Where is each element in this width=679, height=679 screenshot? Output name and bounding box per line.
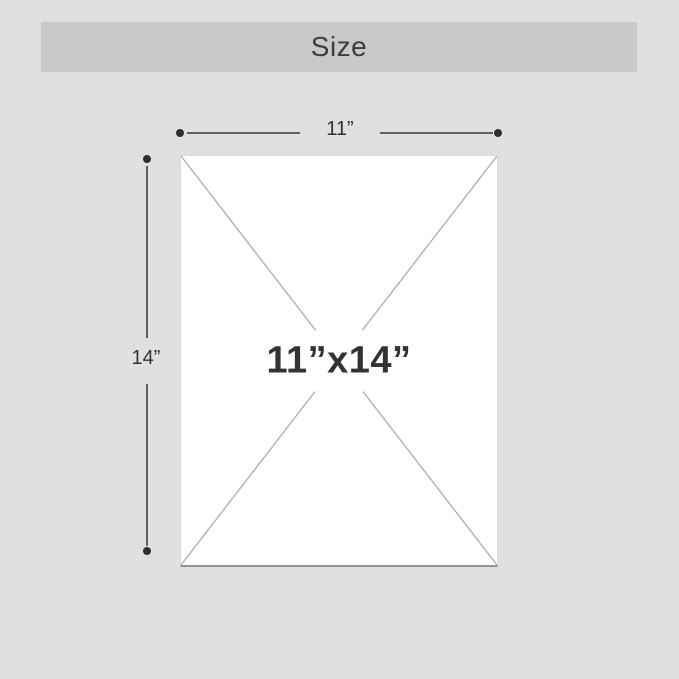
size-panel: 11”x14”: [180, 155, 498, 567]
height-dimension-bottom-dot-icon: [143, 547, 151, 555]
width-dimension-label: 11”: [316, 118, 364, 141]
size-diagram: Size 11” 14” 11”x14”: [0, 0, 679, 679]
width-dimension-left-dot-icon: [176, 129, 184, 137]
header-bar: Size: [41, 22, 637, 72]
size-value-label: 11”x14”: [254, 330, 423, 391]
height-dimension-label: 14”: [116, 347, 176, 370]
width-dimension-line-right: [380, 132, 493, 134]
width-dimension-right-dot-icon: [494, 129, 502, 137]
page-title: Size: [311, 31, 367, 63]
width-dimension-line-left: [187, 132, 300, 134]
height-dimension-line-lower: [146, 384, 148, 546]
height-dimension-line-upper: [146, 166, 148, 338]
height-dimension-top-dot-icon: [143, 155, 151, 163]
